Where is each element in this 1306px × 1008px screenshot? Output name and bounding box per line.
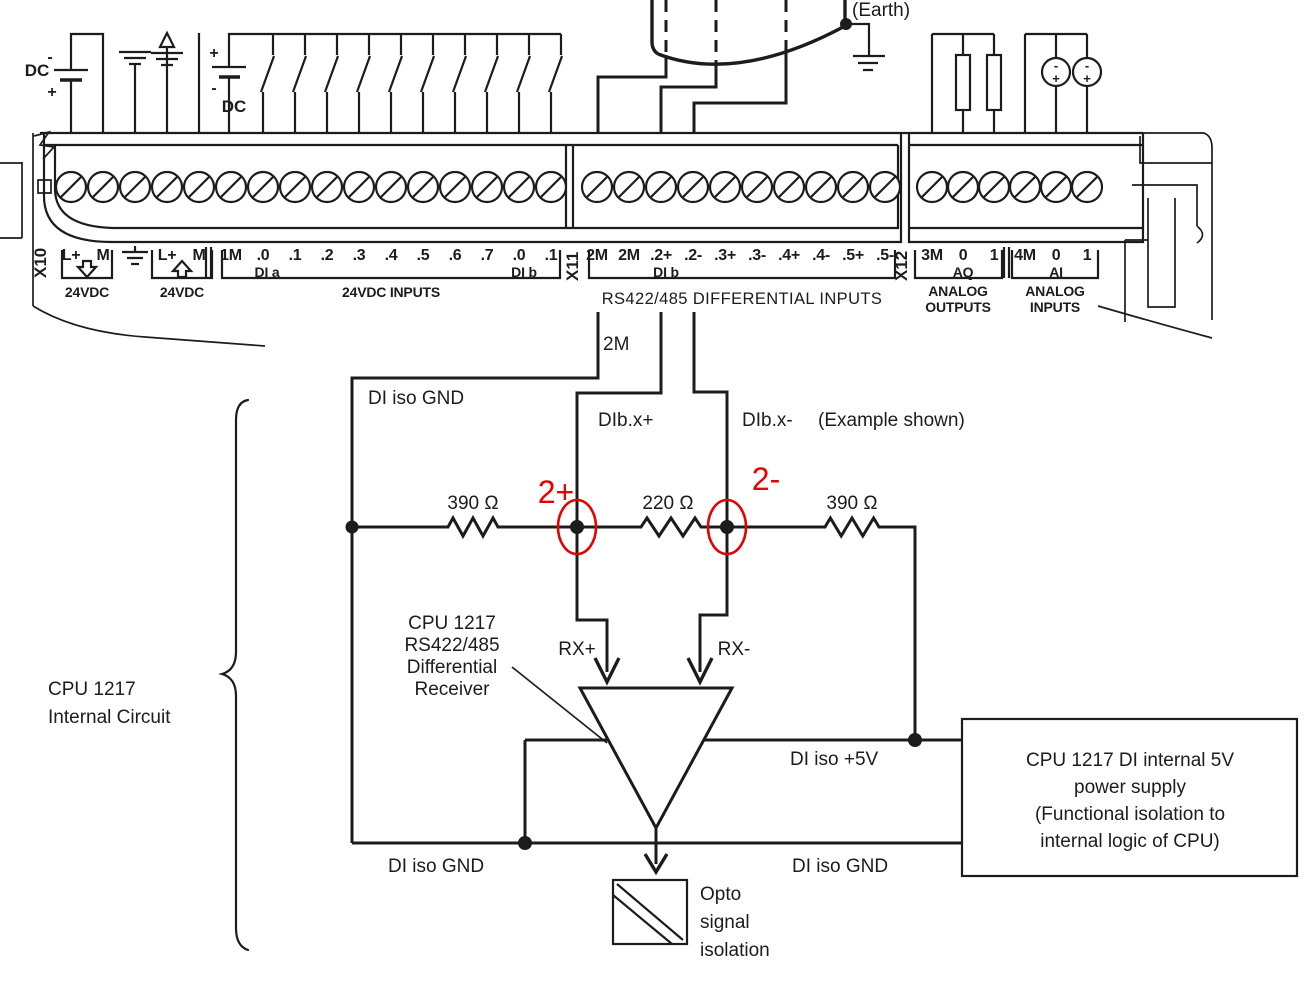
internal-circuit: CPU 1217 Internal Circuit CPU 1217 DI in…	[48, 312, 1297, 961]
label-rx-plus: RX+	[558, 639, 596, 660]
brace	[222, 400, 248, 950]
earth-ground-icon	[119, 52, 151, 133]
junction-dot-2minus	[720, 520, 734, 534]
group-separator	[206, 247, 211, 278]
switch-contact-icon	[357, 34, 370, 133]
terminal-label: M	[192, 247, 205, 264]
opto-label-2: signal	[700, 912, 750, 933]
probe-label-2minus: 2-	[752, 461, 780, 497]
psu-line-1: CPU 1217 DI internal 5V	[1026, 750, 1234, 771]
switch-contact-icon	[453, 34, 466, 133]
earth-ground-icon	[853, 56, 885, 70]
label-r-390-left: 390 Ω	[447, 493, 498, 514]
wire-2m	[598, 58, 666, 133]
analog-input-sources: - + - +	[1025, 34, 1101, 133]
caption-rs422: RS422/485 DIFFERENTIAL INPUTS	[602, 290, 883, 308]
dc-label: DC	[222, 97, 247, 116]
break-line-left	[33, 306, 265, 346]
terminal-label: 2M	[586, 247, 608, 264]
switch-contact-icon	[261, 34, 274, 133]
diagram-canvas: DC - + + - DC	[0, 0, 1306, 1008]
dc-label: DC	[25, 61, 50, 80]
terminal-label: .2	[321, 247, 334, 264]
terminal-label: 0	[959, 247, 968, 264]
load-resistor	[987, 55, 1001, 110]
terminal-label: .2-	[684, 247, 702, 264]
shielded-cable: (Earth)	[652, 0, 910, 70]
terminal-label: 3M	[921, 247, 943, 264]
terminal-label: .7	[481, 247, 494, 264]
label-example-shown: (Example shown)	[818, 410, 965, 431]
terminal-label: .1	[289, 247, 302, 264]
terminal-label: L+	[62, 247, 81, 264]
housing-left	[0, 132, 265, 346]
caption-analog-inputs-2: INPUTS	[1030, 299, 1080, 315]
analog-output-loads	[932, 34, 1001, 133]
caption-analog-outputs-2: OUTPUTS	[925, 299, 991, 315]
load-resistor	[956, 55, 970, 110]
caption-aq: AQ	[953, 264, 974, 280]
terminal-label: .3-	[748, 247, 766, 264]
psu-line-3: (Functional isolation to	[1035, 804, 1225, 825]
arrow-down-icon	[78, 261, 96, 277]
caption-24vdc-inputs: 24VDC INPUTS	[342, 284, 440, 300]
terminal-label: 1	[1083, 247, 1092, 264]
opto-label-1: Opto	[700, 884, 741, 905]
terminal-label-row: X10 X11 X12 L+ML+M1M.0.1.2.3.4.5.6.7.0.1…	[31, 246, 1098, 315]
caption-24vdc-in: 24VDC	[65, 284, 109, 300]
caption-analog-inputs-1: ANALOG	[1025, 283, 1085, 299]
minus-sign: -	[47, 49, 52, 66]
switch-contact-icon	[325, 34, 338, 133]
psu-line-4: internal logic of CPU)	[1040, 831, 1220, 852]
terminal-label: .4+	[778, 247, 800, 264]
terminal-label: 0	[1052, 247, 1061, 264]
terminal-label: .0	[257, 247, 270, 264]
earth-ground-icon	[122, 246, 148, 264]
label-di-iso-gnd-top: DI iso GND	[368, 388, 464, 409]
psu-line-2: power supply	[1074, 777, 1186, 798]
plus-sign: +	[1052, 71, 1060, 86]
switch-contact-icon	[517, 34, 530, 133]
plus-sign: +	[209, 45, 218, 62]
terminal-label: 2M	[618, 247, 640, 264]
label-dib-x-minus: DIb.x-	[742, 410, 793, 431]
differential-receiver-triangle	[580, 688, 732, 828]
plus-sign: +	[1083, 71, 1091, 86]
label-2m: 2M	[603, 334, 629, 355]
probe-label-2plus: 2+	[538, 474, 574, 510]
switch-contact-icon	[549, 34, 562, 133]
label-dib-x-plus: DIb.x+	[598, 410, 653, 431]
terminal-strip	[40, 133, 1143, 242]
dc-supply-battery: DC - +	[25, 34, 103, 133]
junction-dot	[908, 733, 922, 747]
connector-x11-label: X11	[563, 252, 582, 281]
caption-analog-outputs-1: ANALOG	[928, 283, 988, 299]
earth-label: (Earth)	[852, 0, 910, 21]
terminal-label: .5-	[876, 247, 894, 264]
label-r-390-right: 390 Ω	[826, 493, 877, 514]
internal-circuit-label-1: CPU 1217	[48, 679, 136, 700]
terminal-screws	[56, 172, 1102, 202]
opto-label-3: isolation	[700, 940, 770, 961]
label-di-iso-gnd-right: DI iso GND	[792, 856, 888, 877]
caption-ai: AI	[1049, 264, 1063, 280]
receiver-label-1: CPU 1217	[408, 613, 496, 634]
switch-contact-icon	[389, 34, 402, 133]
caption-di-a: DI a	[255, 264, 280, 280]
label-rx-minus: RX-	[718, 639, 751, 660]
input-switches	[261, 34, 562, 133]
receiver-label-4: Receiver	[415, 679, 491, 700]
junction-dot	[518, 836, 532, 850]
top-field-wiring: DC - + + - DC	[25, 0, 1101, 133]
terminal-label: .6	[449, 247, 462, 264]
junction-dot	[346, 521, 359, 534]
junction-dot-2plus	[570, 520, 584, 534]
terminal-label: .5+	[842, 247, 864, 264]
earth-ground-arrow-icon	[151, 33, 183, 133]
terminal-label: L+	[158, 247, 177, 264]
terminal-label: M	[96, 247, 109, 264]
terminal-label: .4-	[812, 247, 830, 264]
terminal-label: .0	[513, 247, 526, 264]
caption-di-b: DI b	[511, 264, 537, 280]
terminal-label: .1	[545, 247, 558, 264]
connector-x10-label: X10	[31, 248, 50, 278]
label-di-iso-5v: DI iso +5V	[790, 749, 879, 770]
internal-circuit-label-2: Internal Circuit	[48, 707, 171, 728]
caption-di-b-x11: DI b	[653, 264, 679, 280]
cpu1217-wiring-diagram: DC - + + - DC	[0, 0, 1306, 1008]
wire-2plus	[661, 64, 716, 133]
label-di-iso-gnd-left: DI iso GND	[388, 856, 484, 877]
terminal-label: .4	[385, 247, 398, 264]
terminal-label: .5	[417, 247, 430, 264]
receiver-label-3: Differential	[407, 657, 497, 678]
terminal-label: 1M	[220, 247, 242, 264]
minus-sign: -	[211, 80, 216, 97]
receiver-label-2: RS422/485	[404, 635, 499, 656]
group-separator	[1004, 247, 1009, 278]
terminal-label: .3	[353, 247, 366, 264]
terminal-label: 1	[990, 247, 999, 264]
terminal-label: .2+	[650, 247, 672, 264]
housing-right	[1098, 133, 1212, 338]
wire-dib-minus	[694, 312, 727, 527]
plus-sign: +	[47, 84, 56, 101]
switch-contact-icon	[485, 34, 498, 133]
caption-24vdc-out: 24VDC	[160, 284, 204, 300]
label-r-220: 220 Ω	[642, 493, 693, 514]
switch-contact-icon	[293, 34, 306, 133]
switch-contact-icon	[421, 34, 434, 133]
break-line-right	[1098, 306, 1212, 338]
terminal-label: 4M	[1014, 247, 1036, 264]
terminal-label: .3+	[714, 247, 736, 264]
